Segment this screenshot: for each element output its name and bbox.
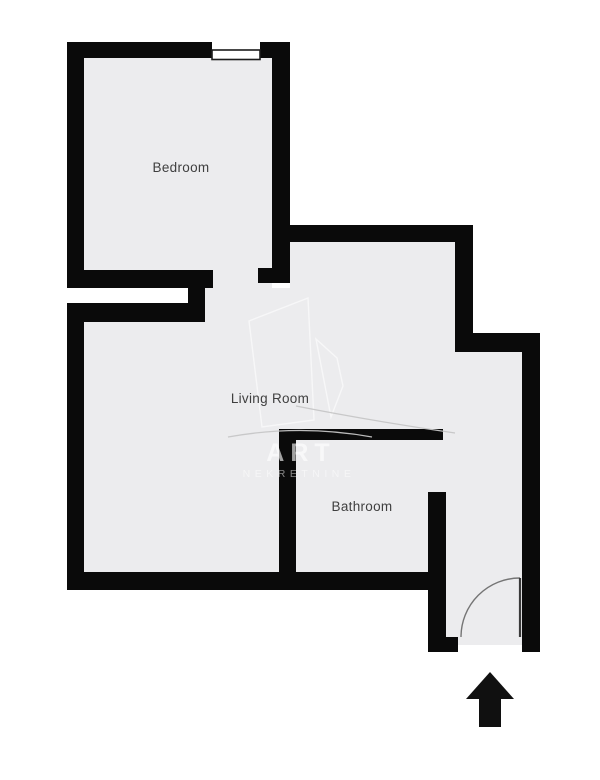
wall-living-room-top (272, 225, 473, 242)
living-room-floor-left (84, 322, 205, 572)
living-room-floor-upper (290, 242, 455, 292)
wall-bedroom-bottom (67, 270, 213, 288)
wall-right-upper (455, 225, 473, 352)
bedroom-window-icon (212, 50, 260, 60)
wall-recess-riser (188, 288, 205, 303)
wall-entrance-jamb (428, 637, 458, 652)
floor-plan-drawing: ART NEKRETNINE Bedroom Living Room Bathr… (0, 0, 600, 780)
wall-bottom (67, 572, 445, 590)
watermark-brand-text: ART (266, 439, 335, 467)
entry-corridor-floor (446, 352, 522, 645)
wall-living-room-top-left (67, 303, 205, 322)
bathroom-label: Bathroom (332, 499, 393, 514)
watermark-subtitle-text: NEKRETNINE (243, 468, 356, 480)
wall-living-room-left (67, 303, 84, 590)
wall-bedroom-left (67, 42, 84, 288)
floor-plan-page: ART NEKRETNINE Bedroom Living Room Bathr… (0, 0, 600, 780)
wall-right-lower (522, 333, 540, 652)
entrance-arrow-stem (479, 699, 501, 727)
bedroom-label: Bedroom (153, 160, 210, 175)
wall-bedroom-door-jamb (258, 268, 290, 283)
wall-bathroom-right (428, 492, 446, 652)
wall-bedroom-top-left (67, 42, 212, 58)
living-room-label: Living Room (231, 391, 309, 406)
bedroom-doorway-floor (213, 266, 258, 290)
